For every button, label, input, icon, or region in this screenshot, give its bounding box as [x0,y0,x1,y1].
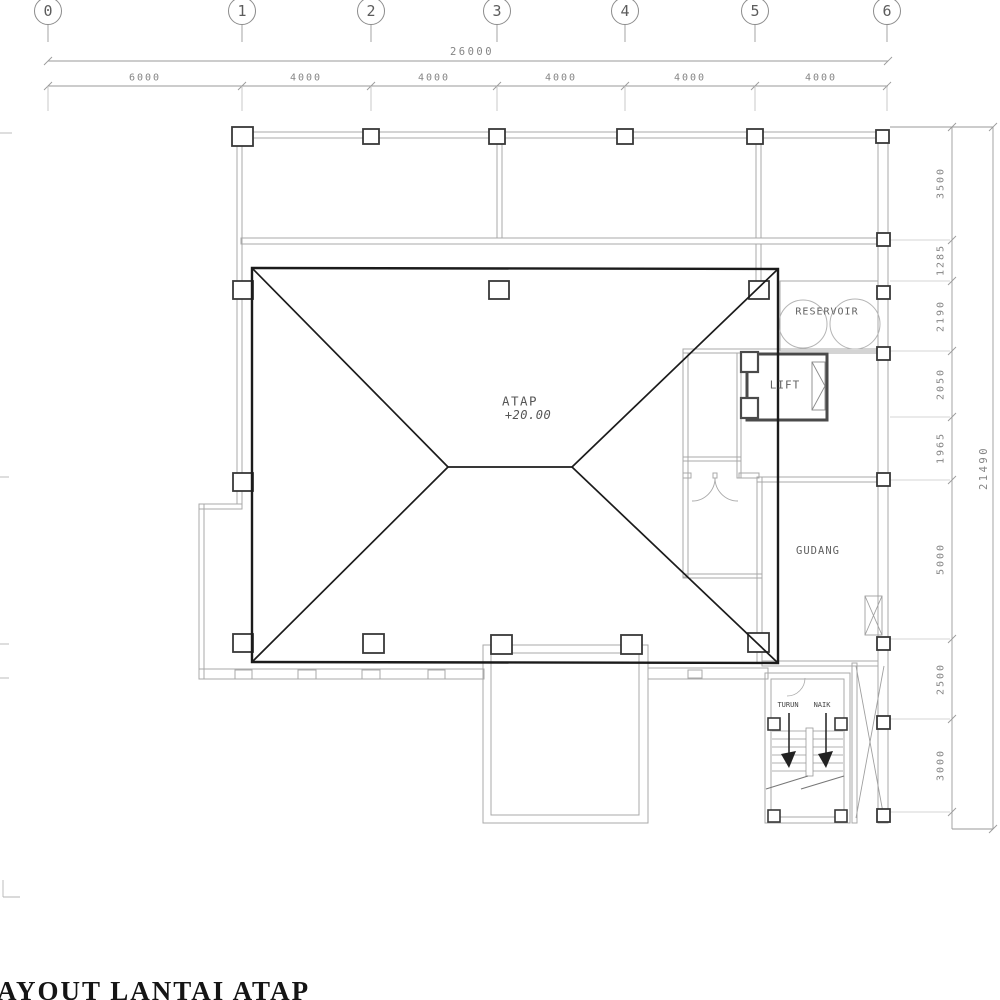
reservoir-label: RESERVOIR [795,307,858,318]
dim-right-total: 21490 [978,446,990,490]
stairs [766,678,844,789]
gudang-label: GUDANG [796,545,840,557]
dim-right-seg: 2190 [936,300,947,332]
dim-top-seg: 4000 [545,73,577,84]
drawing-title: AYOUT LANTAI ATAP [0,976,310,1000]
grid-label: 2 [366,2,375,20]
lift-label: LIFT [770,379,801,392]
grid-label: 1 [237,2,246,20]
dim-top-total: 26000 [450,46,494,58]
grid-dimension-lines [0,24,997,897]
grid-label: 0 [43,2,52,20]
dim-right-seg: 3500 [936,167,947,199]
dim-top-seg: 4000 [418,73,450,84]
dim-top-seg: 4000 [805,73,837,84]
plan-linework [0,0,1000,1000]
dim-right-seg: 2050 [936,368,947,400]
stair-down-label: TURUN [777,701,798,709]
grid-label: 5 [750,2,759,20]
hip-roof-outline [252,268,778,663]
roof-label: ATAP [502,394,538,409]
double-door-arcs [692,478,738,501]
dim-right-seg: 2500 [936,663,947,695]
roof-level-label: +20.00 [505,408,551,422]
dim-right-seg: 3000 [936,749,947,781]
building-walls [199,132,888,823]
grid-label: 3 [492,2,501,20]
dim-top-seg: 4000 [290,73,322,84]
stair-up-label: NAIK [814,701,831,709]
structural-columns [232,127,890,822]
dim-top-seg: 6000 [129,73,161,84]
floor-plan-canvas: 0 1 2 3 4 5 6 26000 6000 4000 4000 4000 … [0,0,1000,1000]
dim-right-seg: 1285 [936,244,947,276]
dim-right-seg: 1965 [936,432,947,464]
grid-label: 4 [620,2,629,20]
dim-right-seg: 5000 [936,543,947,575]
vent-shaft-x-brace [856,596,884,818]
grid-label: 6 [882,2,891,20]
dim-top-seg: 4000 [674,73,706,84]
lift-counterweight [812,362,825,410]
